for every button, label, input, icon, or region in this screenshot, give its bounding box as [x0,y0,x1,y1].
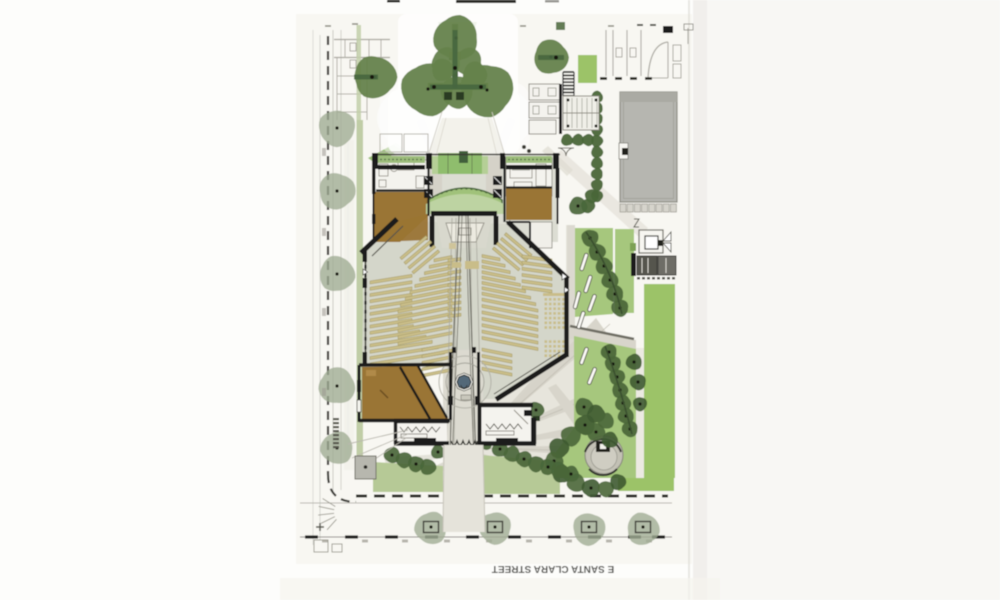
svg-text:E SANTA CLARA STREET: E SANTA CLARA STREET [492,563,614,574]
